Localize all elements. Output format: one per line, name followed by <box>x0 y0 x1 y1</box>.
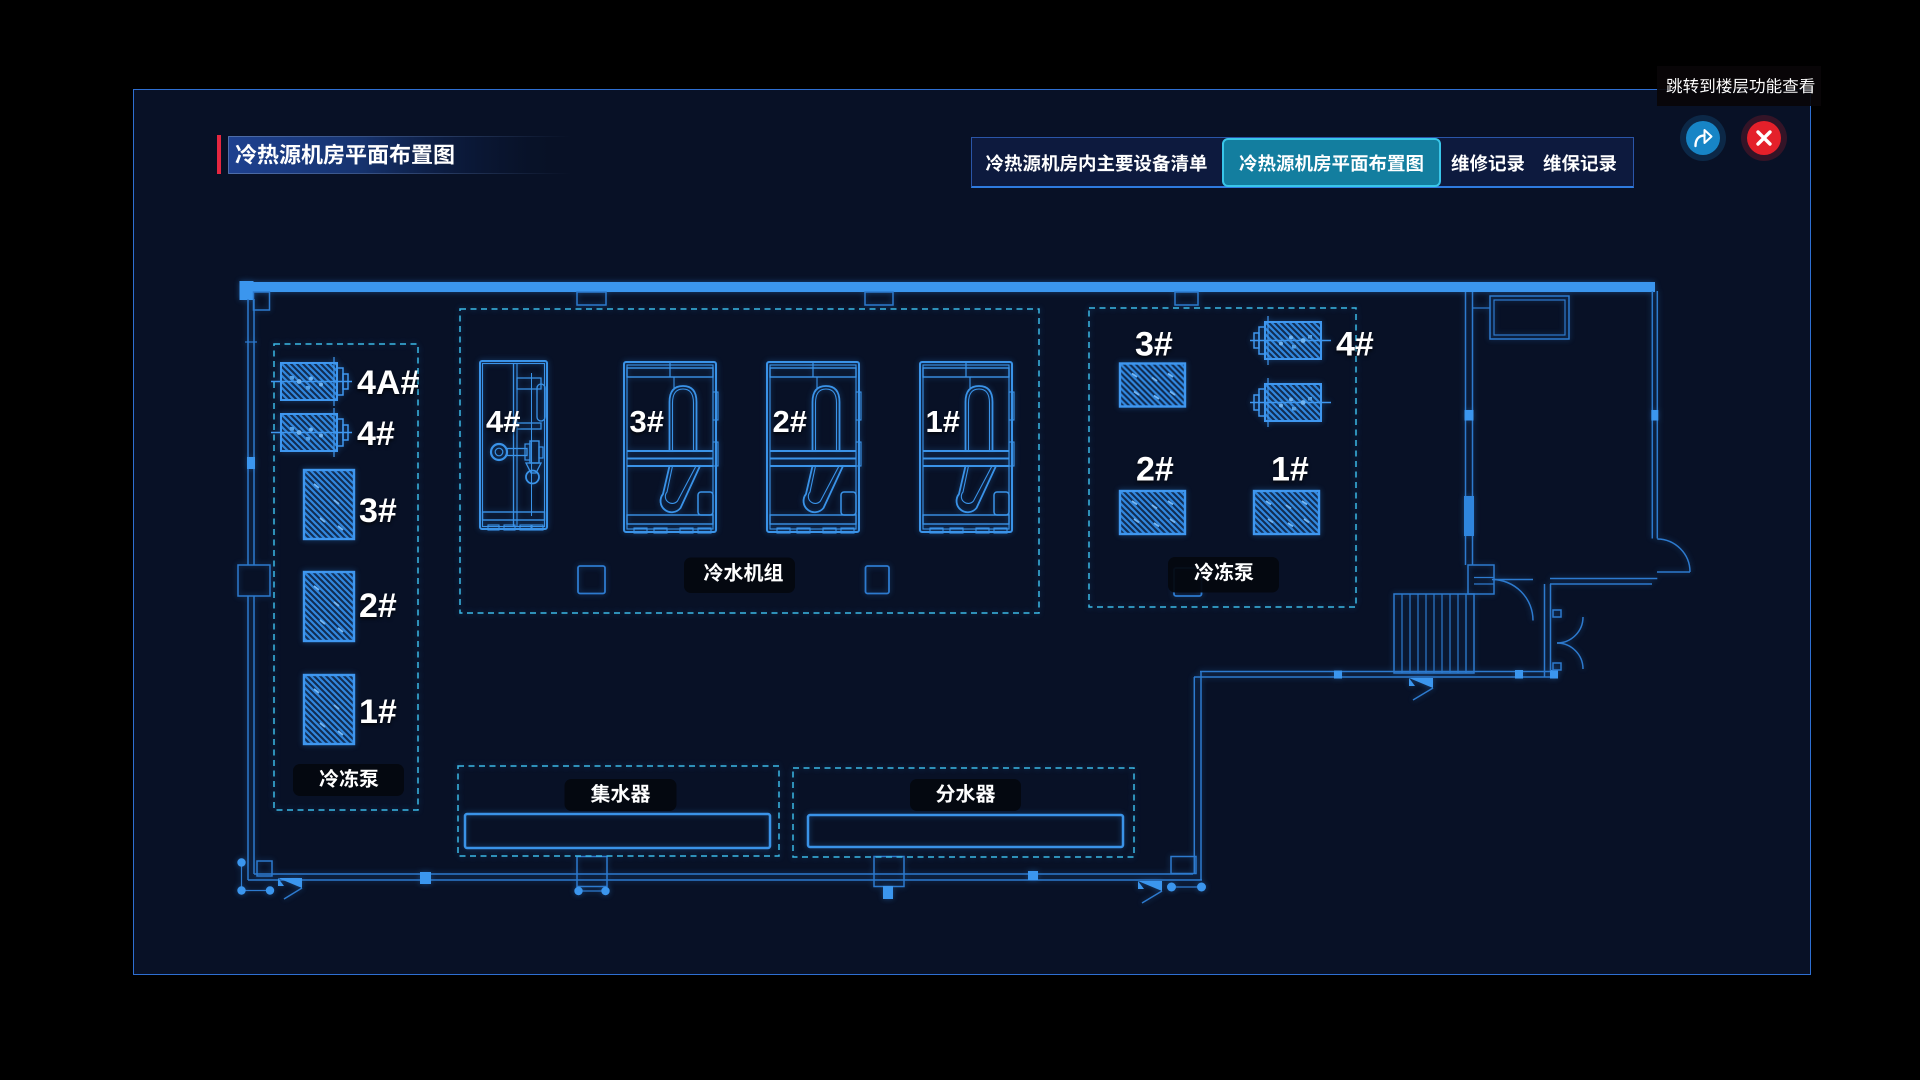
svg-text:3#: 3# <box>1135 326 1173 364</box>
svg-text:4A#: 4A# <box>357 364 419 402</box>
svg-text:4#: 4# <box>1336 326 1374 364</box>
svg-text:1#: 1# <box>359 693 397 731</box>
svg-text:3#: 3# <box>630 404 664 439</box>
svg-text:3#: 3# <box>359 492 397 530</box>
svg-text:4#: 4# <box>486 404 520 439</box>
svg-text:1#: 1# <box>1271 451 1309 489</box>
svg-text:2#: 2# <box>1136 451 1174 489</box>
svg-text:1#: 1# <box>926 404 960 439</box>
svg-text:2#: 2# <box>359 587 397 625</box>
svg-text:4#: 4# <box>357 415 395 453</box>
svg-text:2#: 2# <box>773 404 807 439</box>
